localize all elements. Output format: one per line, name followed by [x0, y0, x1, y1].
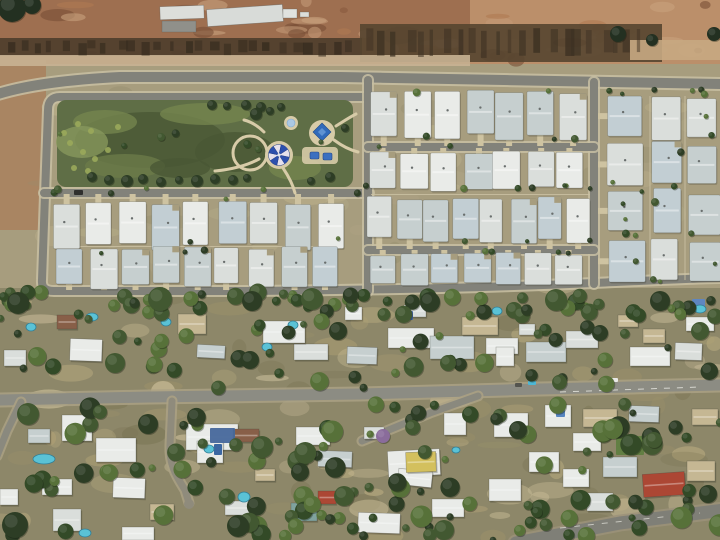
- tree-highlight: [103, 466, 111, 474]
- lawn-patch: [150, 158, 210, 178]
- tree-highlight: [647, 35, 653, 41]
- tree-highlight: [436, 522, 446, 532]
- tree-highlight: [624, 217, 626, 219]
- tree-highlight: [689, 231, 692, 234]
- tree-highlight: [690, 89, 693, 92]
- roof-ridge: [186, 266, 209, 268]
- tree-highlight: [20, 365, 24, 369]
- tree-highlight: [419, 447, 426, 454]
- trench-texture: [459, 29, 464, 55]
- tree-highlight: [704, 114, 706, 116]
- dirt-patch: [61, 13, 86, 21]
- tree-highlight: [384, 297, 389, 302]
- tree-highlight: [370, 514, 374, 518]
- trench-texture: [318, 43, 326, 57]
- roof-ridge: [425, 220, 446, 222]
- tree-highlight: [183, 250, 185, 252]
- tree-highlight: [175, 462, 184, 471]
- tree-highlight: [525, 240, 527, 242]
- tree-highlight: [651, 277, 654, 280]
- roof-notch: [172, 246, 179, 252]
- tree-highlight: [267, 108, 271, 112]
- roof-ridge: [55, 519, 80, 521]
- ground-patch: [501, 404, 533, 413]
- tree-highlight: [633, 521, 641, 529]
- tree-highlight: [9, 294, 20, 305]
- trench-texture: [637, 29, 640, 52]
- tree-highlight: [547, 291, 558, 302]
- tree-highlight: [50, 477, 55, 482]
- roof-ridge: [296, 351, 327, 353]
- roof-vent: [463, 214, 465, 216]
- tree-highlight: [605, 421, 615, 431]
- roof-ridge: [540, 217, 559, 219]
- tree-highlight: [149, 465, 152, 468]
- earthworks-band: [0, 55, 470, 66]
- tree-highlight: [47, 360, 55, 368]
- roof-vent: [537, 264, 539, 266]
- roof-ridge: [124, 266, 147, 268]
- roof-ridge: [216, 264, 236, 266]
- construction-shed: [283, 9, 297, 18]
- tree-highlight: [447, 514, 451, 518]
- shrub: [80, 149, 86, 155]
- trench-texture: [142, 42, 150, 55]
- trench-texture: [280, 42, 287, 53]
- house: [675, 343, 704, 363]
- roof-ridge: [6, 357, 25, 359]
- roof-ridge: [498, 356, 513, 358]
- trench-texture: [586, 30, 592, 54]
- tree-highlight: [244, 175, 248, 179]
- tree-highlight: [109, 301, 115, 307]
- roof-ridge: [432, 171, 454, 173]
- house: [28, 429, 51, 445]
- roof-ridge: [369, 216, 390, 218]
- house: [70, 338, 104, 363]
- roof-ridge: [498, 267, 519, 269]
- trench-texture: [469, 28, 476, 53]
- trench-texture: [508, 30, 511, 53]
- roof-ridge: [694, 416, 717, 418]
- roof-ridge: [434, 507, 463, 509]
- roof-ridge: [403, 269, 427, 271]
- roof-vent: [551, 213, 553, 215]
- roof-ridge: [689, 164, 714, 166]
- trench-texture: [533, 28, 540, 53]
- roof-ridge: [481, 220, 500, 222]
- roof-vent: [477, 167, 479, 169]
- roof-vent: [622, 111, 624, 113]
- roof-vent: [701, 210, 703, 212]
- tree-highlight: [413, 508, 424, 519]
- tree-highlight: [511, 423, 520, 432]
- roof-ridge: [185, 222, 206, 224]
- house: [255, 469, 276, 483]
- tree-highlight: [524, 502, 529, 507]
- tree-highlight: [412, 407, 420, 415]
- roof-vent: [261, 263, 263, 265]
- tree-highlight: [360, 532, 365, 537]
- roof-vent: [263, 218, 265, 220]
- roof-notch: [580, 94, 587, 100]
- driveway: [295, 194, 301, 206]
- tree-highlight: [131, 464, 139, 472]
- roof-vent: [198, 262, 200, 264]
- swimming-pool: [238, 492, 250, 502]
- roof-ridge: [495, 169, 519, 171]
- roof-ridge: [491, 489, 520, 491]
- roof-ridge: [469, 111, 492, 113]
- roof-ridge: [488, 345, 517, 347]
- tree-highlight: [446, 290, 454, 298]
- tree-highlight: [201, 247, 205, 251]
- tree-highlight: [550, 334, 557, 341]
- roof-vent: [376, 211, 378, 213]
- house: [294, 344, 329, 362]
- roof-ridge: [513, 220, 535, 222]
- roof-ridge: [373, 113, 395, 115]
- tree-highlight: [336, 488, 346, 498]
- tree-highlight: [483, 249, 486, 252]
- tree-highlight: [633, 259, 636, 262]
- house: [0, 489, 19, 507]
- tree-highlight: [507, 304, 515, 312]
- tree-highlight: [684, 485, 691, 492]
- tree-highlight: [422, 294, 432, 304]
- trench-texture: [170, 41, 173, 51]
- roof-ridge: [372, 269, 393, 271]
- trench-texture: [63, 41, 70, 52]
- roof-ridge: [284, 266, 306, 268]
- tree-highlight: [607, 88, 610, 91]
- tree-highlight: [390, 403, 395, 408]
- tree-highlight: [224, 103, 228, 107]
- house: [630, 347, 671, 368]
- tree-highlight: [122, 143, 125, 146]
- tree-highlight: [358, 290, 364, 296]
- roof-vent: [297, 222, 299, 224]
- tree-highlight: [462, 239, 465, 242]
- tree-highlight: [364, 183, 367, 186]
- roof-ridge: [124, 533, 153, 535]
- trench-texture: [35, 43, 41, 53]
- tree-highlight: [556, 250, 559, 253]
- tree-highlight: [607, 452, 610, 455]
- tree-highlight: [442, 480, 452, 490]
- trench-texture: [390, 32, 395, 57]
- tree-highlight: [540, 325, 546, 331]
- roof-ridge: [257, 474, 274, 476]
- tree-highlight: [448, 144, 451, 147]
- roof-vent: [412, 265, 414, 267]
- tree-highlight: [541, 520, 547, 526]
- dirt-patch: [650, 2, 675, 12]
- tree-highlight: [26, 476, 35, 485]
- tree-highlight: [579, 529, 588, 538]
- trench-texture: [153, 42, 160, 50]
- tree-highlight: [308, 178, 312, 182]
- dirt-patch: [340, 7, 348, 13]
- swimming-pool: [79, 529, 91, 537]
- tree-highlight: [621, 202, 623, 204]
- tree-highlight: [414, 335, 422, 343]
- shrub: [67, 140, 73, 146]
- roof-notch: [530, 199, 537, 205]
- tree-highlight: [198, 291, 202, 295]
- roof-ridge: [320, 497, 335, 499]
- trench-texture: [224, 44, 231, 55]
- roof-vent: [508, 110, 510, 112]
- tree-highlight: [392, 370, 396, 374]
- tree-highlight: [331, 324, 340, 333]
- tree-highlight: [94, 406, 101, 413]
- tree-highlight: [199, 440, 204, 445]
- tree-highlight: [492, 414, 498, 420]
- tree-highlight: [229, 289, 238, 298]
- ground-patch: [8, 451, 37, 465]
- roof-ridge: [565, 477, 588, 479]
- tree-highlight: [301, 322, 304, 325]
- roof-notch: [142, 249, 149, 255]
- roof-ridge: [433, 267, 456, 269]
- roof-ridge: [689, 470, 714, 472]
- tree-highlight: [30, 349, 39, 358]
- tree-highlight: [621, 330, 626, 335]
- tree-highlight: [327, 459, 337, 469]
- tree-highlight: [122, 176, 128, 182]
- tree-highlight: [403, 525, 407, 529]
- tree-highlight: [321, 306, 328, 313]
- roof-ridge: [632, 356, 669, 358]
- tree-highlight: [630, 496, 637, 503]
- roof-ridge: [58, 265, 80, 267]
- tree-highlight: [476, 293, 483, 300]
- tree-highlight: [678, 149, 682, 153]
- tree-highlight: [652, 87, 655, 90]
- dirt-patch: [486, 14, 510, 19]
- roof-ridge: [568, 339, 597, 341]
- tree-highlight: [633, 310, 640, 317]
- tree-highlight: [683, 434, 688, 439]
- tree-highlight: [423, 133, 427, 137]
- tree-highlight: [526, 518, 532, 524]
- dirt-patch: [302, 17, 327, 24]
- house: [197, 344, 227, 360]
- trench-texture: [334, 42, 341, 55]
- roof-ridge: [569, 220, 588, 222]
- tree-highlight: [323, 423, 334, 434]
- roof-vent: [574, 111, 576, 113]
- roof-vent: [131, 217, 133, 219]
- tree-highlight: [461, 186, 465, 190]
- tree-highlight: [85, 316, 89, 320]
- tree-highlight: [180, 422, 184, 426]
- tree-highlight: [229, 517, 240, 528]
- tree-highlight: [211, 175, 216, 180]
- tree-highlight: [231, 439, 238, 446]
- house: [692, 409, 719, 427]
- ground-patch: [650, 313, 678, 323]
- roof-vent: [385, 108, 387, 110]
- roof-vent: [328, 220, 330, 222]
- tree-highlight: [369, 398, 377, 406]
- roof-ridge: [372, 169, 394, 171]
- tree-highlight: [379, 309, 385, 315]
- roof-ridge: [585, 417, 616, 419]
- roof-ridge: [690, 214, 718, 216]
- driveway: [64, 194, 70, 205]
- tree-highlight: [630, 410, 633, 413]
- roof-vent: [477, 264, 479, 266]
- roof-notch: [389, 152, 396, 158]
- tree-highlight: [406, 296, 414, 304]
- tree-highlight: [588, 187, 590, 189]
- roof-ridge: [98, 449, 135, 451]
- trench-texture: [87, 40, 95, 48]
- house: [113, 477, 147, 500]
- tree-highlight: [436, 333, 440, 337]
- trench-texture: [377, 31, 384, 56]
- roof-vent: [411, 167, 413, 169]
- tree-highlight: [594, 327, 602, 335]
- roof-vent: [539, 164, 541, 166]
- tree-highlight: [377, 145, 379, 147]
- earthworks-band: [630, 40, 720, 60]
- tree-highlight: [278, 104, 282, 108]
- tree-highlight: [320, 443, 325, 448]
- dome-shade: [287, 119, 295, 127]
- tree-highlight: [442, 357, 450, 365]
- roof-vent: [432, 215, 434, 217]
- tree-highlight: [55, 186, 59, 190]
- tree-highlight: [611, 180, 613, 182]
- roof-ridge: [497, 115, 521, 117]
- tree-highlight: [350, 372, 356, 378]
- roof-ridge: [287, 226, 308, 228]
- tree-highlight: [249, 499, 258, 508]
- roof-vent: [568, 165, 570, 167]
- roof-vent: [416, 109, 418, 111]
- tree-highlight: [360, 385, 364, 389]
- tree-highlight: [431, 402, 436, 407]
- roof-ridge: [399, 218, 420, 220]
- roof-ridge: [121, 222, 144, 224]
- tree-highlight: [168, 364, 176, 372]
- tree-highlight: [224, 197, 226, 199]
- tree-highlight: [612, 28, 620, 36]
- tree-highlight: [135, 338, 139, 342]
- tree-highlight: [489, 249, 492, 252]
- roof-ridge: [656, 210, 679, 212]
- roof-ridge: [654, 161, 680, 163]
- roof-ridge: [227, 507, 250, 509]
- tree-highlight: [276, 438, 280, 442]
- roof-ridge: [55, 226, 77, 228]
- tree-highlight: [464, 498, 471, 505]
- culdesac: [184, 499, 194, 509]
- tree-highlight: [67, 425, 78, 436]
- tree-highlight: [574, 290, 581, 297]
- trench-texture: [408, 30, 417, 52]
- tree-highlight: [326, 515, 331, 520]
- blue-feature: [214, 444, 222, 455]
- house: [496, 347, 515, 368]
- roof-vent: [135, 262, 137, 264]
- roof-vent: [407, 214, 409, 216]
- tree-highlight: [633, 233, 636, 236]
- tree-highlight: [35, 287, 42, 294]
- tree-highlight: [242, 101, 247, 106]
- roof-ridge: [558, 169, 581, 171]
- tree-highlight: [588, 238, 591, 241]
- tree-highlight: [156, 335, 163, 342]
- tree-highlight: [336, 237, 338, 239]
- ground-patch: [477, 442, 521, 449]
- roof-vent: [490, 215, 492, 217]
- swimming-pool: [26, 323, 36, 331]
- roof-vent: [446, 109, 448, 111]
- roof-ridge: [610, 210, 641, 212]
- tree-highlight: [600, 377, 608, 385]
- tree-highlight: [581, 322, 588, 329]
- park: [56, 100, 358, 193]
- trench-texture: [345, 40, 352, 52]
- roof-notch: [390, 92, 397, 98]
- tree-highlight: [82, 400, 92, 410]
- roof-ridge: [464, 325, 497, 327]
- tree-highlight: [176, 177, 180, 181]
- roof-ridge: [575, 441, 600, 443]
- tree-highlight: [591, 369, 594, 372]
- tree-highlight: [442, 457, 445, 460]
- roof-vent: [167, 222, 169, 224]
- roof-ridge: [432, 347, 473, 349]
- tree-highlight: [390, 475, 399, 484]
- tree-highlight: [629, 515, 632, 518]
- tree-highlight: [243, 353, 252, 362]
- roof-ridge: [2, 496, 17, 498]
- roof-vent: [168, 260, 170, 262]
- tree-highlight: [185, 293, 192, 300]
- driveway: [130, 194, 136, 203]
- tree-highlight: [244, 293, 254, 303]
- tree-highlight: [169, 445, 178, 454]
- roof-ridge: [609, 163, 641, 165]
- shrub: [105, 147, 111, 153]
- roof-ridge: [466, 267, 489, 269]
- tree-highlight: [283, 327, 290, 334]
- tree-highlight: [414, 89, 418, 93]
- tree-highlight: [155, 507, 165, 517]
- roof-vent: [525, 216, 527, 218]
- roof-ridge: [529, 112, 552, 114]
- tree-highlight: [390, 498, 398, 506]
- roof-ridge: [605, 466, 636, 468]
- trench-texture: [366, 28, 373, 50]
- roof-vent: [539, 108, 541, 110]
- tree-highlight: [319, 140, 322, 143]
- tree-highlight: [515, 526, 521, 532]
- tree-highlight: [273, 298, 277, 302]
- tree-highlight: [207, 458, 212, 463]
- trench-texture: [444, 29, 451, 53]
- trench-texture: [46, 41, 51, 53]
- trench-texture: [195, 40, 202, 50]
- umbrella-hub: [277, 153, 280, 156]
- roof-vent: [509, 264, 511, 266]
- driveway: [261, 194, 267, 203]
